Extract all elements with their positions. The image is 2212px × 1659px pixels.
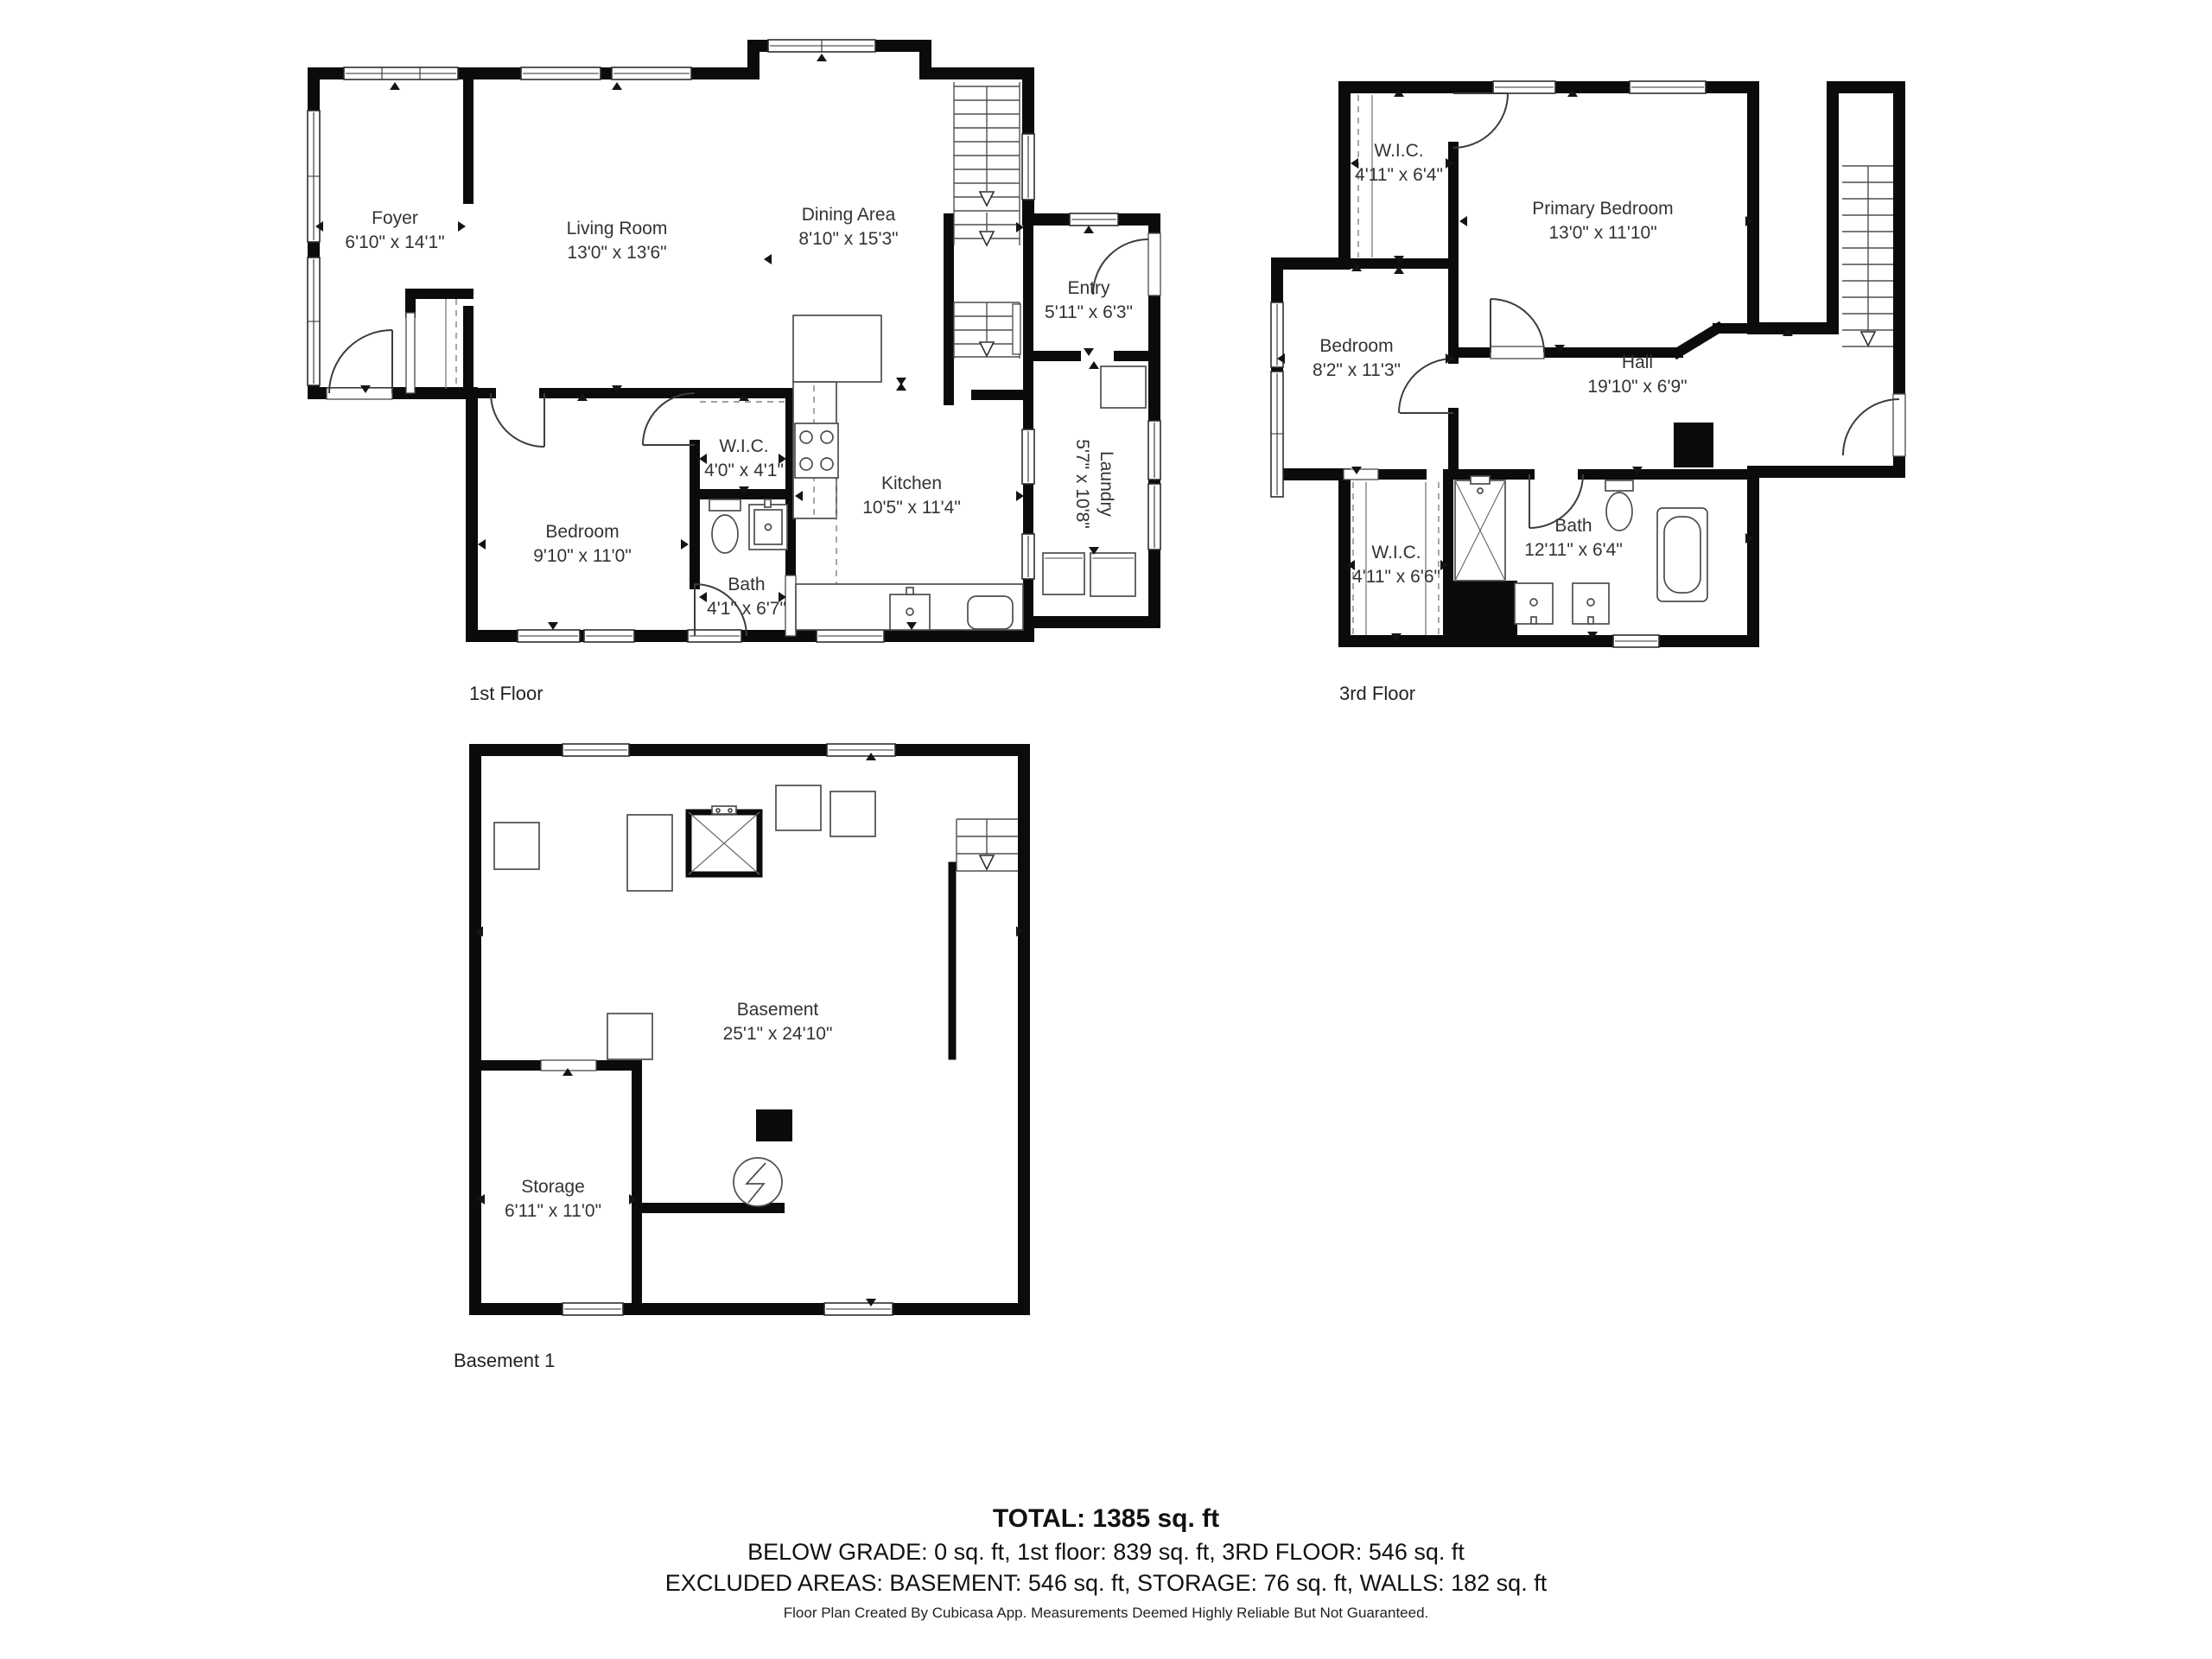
room-name: W.I.C. bbox=[704, 435, 784, 459]
wall-block bbox=[1453, 581, 1517, 641]
room-dims: 13'0" x 13'6" bbox=[567, 241, 668, 265]
room-name: Foyer bbox=[345, 207, 444, 231]
room-label-bath-3rd: Bath 12'11" x 6'4" bbox=[1524, 514, 1623, 563]
toilet-icon bbox=[709, 499, 741, 553]
room-dims: 5'7" x 10'8" bbox=[1070, 439, 1094, 529]
room-dims: 4'0" x 4'1" bbox=[704, 459, 784, 483]
room-dims: 4'1" x 6'7" bbox=[707, 597, 786, 621]
room-dims: 6'11" x 11'0" bbox=[505, 1199, 601, 1224]
room-label-bath: Bath 4'1" x 6'7" bbox=[707, 573, 786, 621]
floor-title-basement: Basement 1 bbox=[454, 1350, 555, 1372]
laundry-cabinet bbox=[1101, 366, 1146, 408]
room-label-wic-3rd: W.I.C. 4'11" x 6'4" bbox=[1355, 139, 1443, 188]
dryer-icon bbox=[1090, 553, 1135, 596]
room-dims: 8'2" x 11'3" bbox=[1313, 359, 1401, 383]
room-dims: 13'0" x 11'10" bbox=[1532, 221, 1673, 245]
excluded-areas-line: EXCLUDED AREAS: BASEMENT: 546 sq. ft, ST… bbox=[0, 1567, 2212, 1599]
room-name: Primary Bedroom bbox=[1532, 197, 1673, 221]
room-label-basement: Basement 25'1" x 24'10" bbox=[723, 998, 833, 1046]
room-name: Bath bbox=[707, 573, 786, 597]
room-dims: 8'10" x 15'3" bbox=[798, 227, 898, 251]
room-name: Living Room bbox=[567, 217, 668, 241]
room-name: Bath bbox=[1524, 514, 1623, 538]
area-summary: TOTAL: 1385 sq. ft BELOW GRADE: 0 sq. ft… bbox=[0, 1502, 2212, 1599]
bathtub-icon bbox=[1657, 508, 1707, 601]
room-name: Basement bbox=[723, 998, 833, 1022]
room-dims: 9'10" x 11'0" bbox=[533, 544, 632, 569]
stove-icon bbox=[795, 423, 838, 478]
floor-plan-page: Foyer 6'10" x 14'1" Living Room 13'0" x … bbox=[0, 0, 2212, 1659]
room-label-wic-3rd-lower: W.I.C. 4'11" x 6'6" bbox=[1352, 541, 1440, 589]
room-name: Kitchen bbox=[862, 472, 961, 496]
water-heater-icon bbox=[734, 1158, 782, 1206]
room-name: Hall bbox=[1587, 351, 1687, 375]
room-dims: 4'11" x 6'4" bbox=[1355, 163, 1443, 188]
room-label-living-room: Living Room 13'0" x 13'6" bbox=[567, 217, 668, 265]
room-name: Bedroom bbox=[1313, 334, 1401, 359]
room-name: W.I.C. bbox=[1355, 139, 1443, 163]
room-name: Dining Area bbox=[798, 203, 898, 227]
room-dims: 19'10" x 6'9" bbox=[1587, 375, 1687, 399]
room-label-wic: W.I.C. 4'0" x 4'1" bbox=[704, 435, 784, 483]
room-label-bedroom: Bedroom 9'10" x 11'0" bbox=[533, 520, 632, 569]
sink-icon bbox=[1515, 583, 1609, 624]
room-dims: 10'5" x 11'4" bbox=[862, 496, 961, 520]
shower-icon bbox=[1455, 476, 1505, 581]
room-name: Bedroom bbox=[533, 520, 632, 544]
room-label-hall: Hall 19'10" x 6'9" bbox=[1587, 351, 1687, 399]
staircase-icon bbox=[954, 82, 1020, 359]
room-label-kitchen: Kitchen 10'5" x 11'4" bbox=[862, 472, 961, 520]
room-dims: 4'11" x 6'6" bbox=[1352, 565, 1440, 589]
room-label-entry: Entry 5'11" x 6'3" bbox=[1045, 276, 1133, 325]
shower-icon bbox=[689, 806, 760, 874]
room-dims: 5'11" x 6'3" bbox=[1045, 301, 1133, 325]
staircase-icon bbox=[1842, 166, 1893, 346]
room-label-dining-area: Dining Area 8'10" x 15'3" bbox=[798, 203, 898, 251]
interior-walls bbox=[410, 73, 1154, 636]
room-name: W.I.C. bbox=[1352, 541, 1440, 565]
room-label-laundry: Laundry 5'7" x 10'8" bbox=[1070, 439, 1118, 529]
disclaimer-text: Floor Plan Created By Cubicasa App. Meas… bbox=[0, 1605, 2212, 1622]
first-floor-plan bbox=[308, 40, 1160, 642]
room-name: Laundry bbox=[1094, 439, 1118, 529]
room-label-bedroom-3rd: Bedroom 8'2" x 11'3" bbox=[1313, 334, 1401, 383]
staircase-icon bbox=[957, 819, 1018, 871]
room-dims: 25'1" x 24'10" bbox=[723, 1022, 833, 1046]
room-dims: 12'11" x 6'4" bbox=[1524, 538, 1623, 563]
support-block bbox=[756, 1109, 792, 1141]
chimney-block bbox=[1674, 423, 1713, 467]
area-breakdown-line: BELOW GRADE: 0 sq. ft, 1st floor: 839 sq… bbox=[0, 1536, 2212, 1567]
room-dims: 6'10" x 14'1" bbox=[345, 231, 444, 255]
room-name: Entry bbox=[1045, 276, 1133, 301]
room-label-primary-bedroom: Primary Bedroom 13'0" x 11'10" bbox=[1532, 197, 1673, 245]
floor-title-3rd: 3rd Floor bbox=[1339, 683, 1415, 705]
room-label-foyer: Foyer 6'10" x 14'1" bbox=[345, 207, 444, 255]
floor-plan-drawing bbox=[0, 0, 2212, 1659]
total-area: TOTAL: 1385 sq. ft bbox=[0, 1502, 2212, 1536]
room-name: Storage bbox=[505, 1175, 601, 1199]
room-label-storage: Storage 6'11" x 11'0" bbox=[505, 1175, 601, 1224]
floor-title-1st: 1st Floor bbox=[469, 683, 543, 705]
washer-icon bbox=[1043, 553, 1084, 594]
sink-icon bbox=[749, 499, 787, 550]
